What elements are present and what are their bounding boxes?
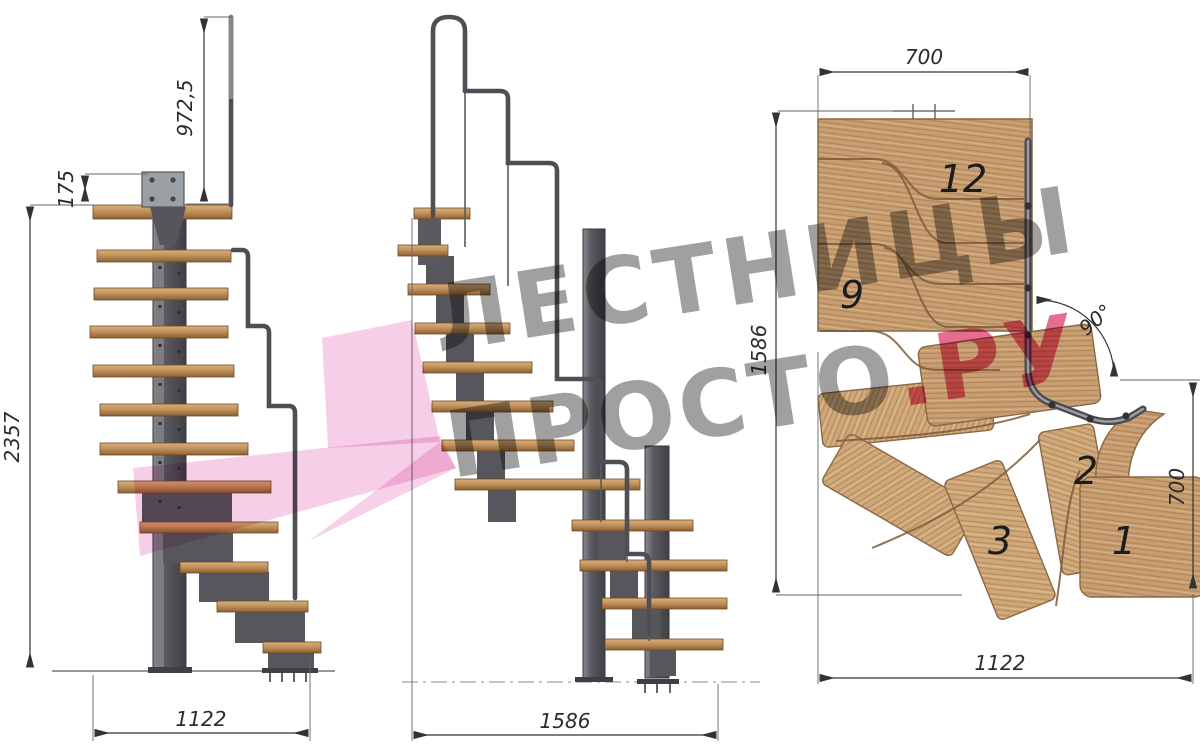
front-anchor-bolts [270,672,306,682]
front-column-base [148,667,192,673]
dim-front-plate-height: 175 [54,170,78,208]
tread [602,598,727,609]
tread [414,208,470,219]
tread [90,326,228,338]
tread [263,642,321,653]
tread [580,560,727,571]
tread [100,443,248,455]
dim-front-width: 1122 [176,707,227,731]
tread [605,639,723,650]
tread [100,404,238,416]
plan-step-number-3: 3 [988,519,1012,563]
side-base-2 [637,679,679,684]
tread [94,288,228,300]
side-base-1 [575,677,613,682]
plan-step-number-2: 2 [1074,449,1098,493]
drawing-canvas: 12 9 3 2 1 [0,0,1200,750]
tread [180,562,268,573]
side-anchor-bolts [645,684,670,693]
tread [572,520,693,531]
dim-plan-bottom-width: 1122 [975,651,1026,675]
side-wall-bracket [418,219,441,265]
tread [93,365,234,377]
plan-step-number-1: 1 [1112,519,1136,563]
dim-plan-right-depth: 700 [1165,468,1189,506]
tread [398,245,448,256]
dim-front-total-height: 2357 [0,411,24,462]
side-rail-loop [433,17,465,216]
front-column-highlight [157,207,164,669]
tread [97,250,231,262]
watermark-arrow-flag [322,320,440,448]
plan-wall-bracket [893,104,955,119]
front-mounting-plate [142,172,184,207]
stair-technical-drawing: 12 9 3 2 1 [0,0,1200,750]
dim-plan-top-width: 700 [905,45,943,69]
front-rail-cascade [233,250,295,598]
tread [217,601,308,612]
dim-side-width: 1586 [540,709,591,733]
dim-front-rail-height: 972,5 [173,79,197,136]
